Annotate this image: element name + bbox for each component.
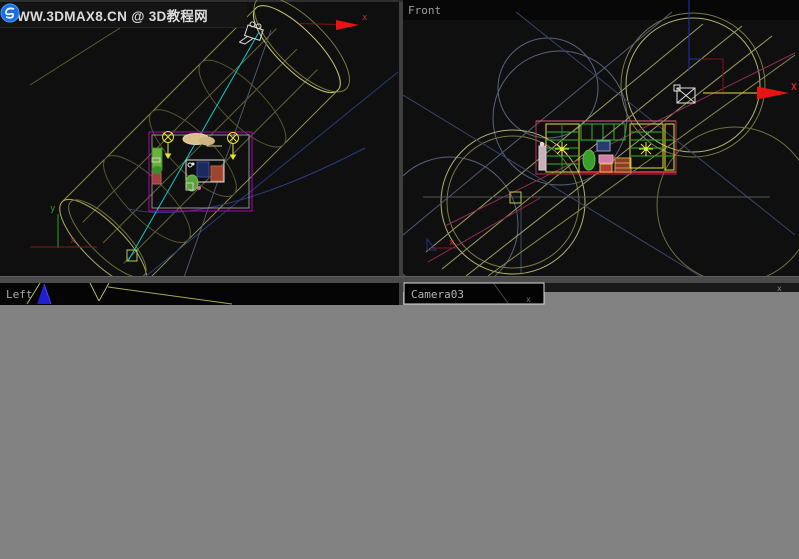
unrendered-gap <box>545 292 799 305</box>
watermark-banner: WWW.3DMAX8.CN @ 3D教程网 <box>0 3 247 28</box>
max-window: x y x <box>0 0 799 559</box>
watermark-text: WWW.3DMAX8.CN @ 3D教程网 <box>4 5 208 25</box>
strip-mark: x <box>777 284 782 293</box>
left-viewport-bar[interactable] <box>0 283 399 305</box>
unrendered-area <box>0 305 799 559</box>
camera-bar-mark: x <box>526 295 531 304</box>
viewport-vertical-splitter[interactable] <box>399 0 403 305</box>
tripod-x-label: x <box>449 238 455 248</box>
tripod-y-label: y <box>50 204 56 214</box>
gizmo-x-label: X <box>791 82 797 93</box>
tripod-x-label: x <box>70 236 76 246</box>
viewport-horizontal-splitter[interactable] <box>0 276 799 283</box>
3dmax8-logo-icon <box>0 3 20 23</box>
viewport-front-canvas[interactable] <box>403 0 799 276</box>
scene-canvas: x y x <box>0 0 799 559</box>
viewport-label-camera[interactable]: Camera03 <box>411 289 464 301</box>
viewport-label-front[interactable]: Front <box>408 5 441 17</box>
viewport-label-left[interactable]: Left <box>6 289 33 301</box>
front-viewport-header <box>403 0 799 20</box>
gizmo-x-label: x <box>362 13 368 23</box>
